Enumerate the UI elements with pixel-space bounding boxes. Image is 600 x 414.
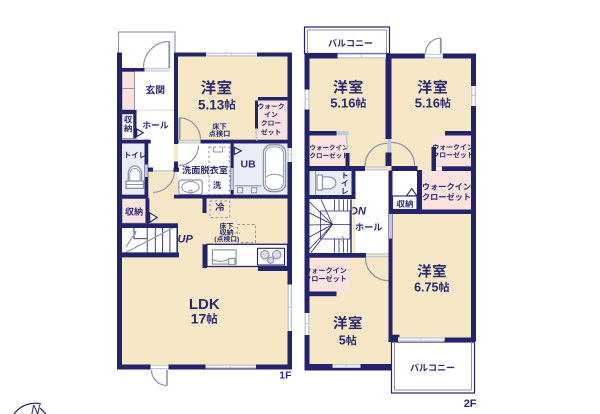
svg-text:N: N bbox=[31, 403, 41, 414]
svg-text:UP: UP bbox=[178, 234, 194, 246]
svg-text:5.13: 5.13 bbox=[198, 97, 225, 112]
svg-text:5.16: 5.16 bbox=[415, 95, 440, 110]
svg-text:5.16: 5.16 bbox=[330, 95, 355, 110]
svg-text:DN: DN bbox=[350, 206, 367, 218]
svg-text:6.75: 6.75 bbox=[414, 280, 438, 294]
svg-text:UB: UB bbox=[241, 159, 257, 171]
svg-text:2F: 2F bbox=[464, 398, 477, 410]
svg-text:5: 5 bbox=[339, 334, 346, 348]
svg-text:1F: 1F bbox=[279, 369, 292, 381]
svg-text:17: 17 bbox=[191, 311, 207, 327]
